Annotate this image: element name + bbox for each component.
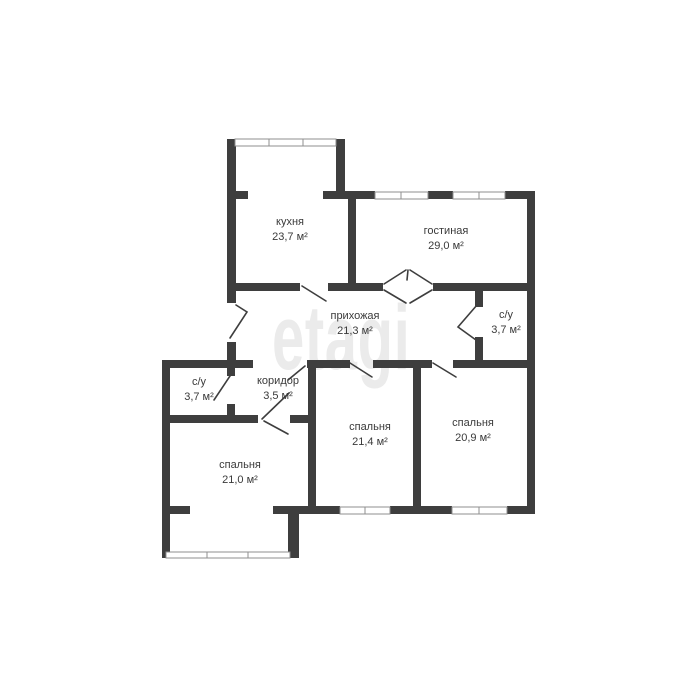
wall-segment bbox=[475, 337, 483, 368]
living-room-door-leaf bbox=[384, 290, 406, 303]
wall-segment bbox=[162, 415, 258, 423]
room-area: 23,7 м² bbox=[220, 230, 360, 245]
wall-segment bbox=[288, 508, 299, 558]
living-room-door-leaf bbox=[384, 270, 406, 284]
room-label-hallway: прихожая 21,3 м² bbox=[285, 309, 425, 339]
wall-segment bbox=[227, 283, 300, 291]
window bbox=[166, 552, 290, 558]
floor-plan-page: etagi bbox=[0, 0, 700, 700]
room-name: прихожая bbox=[285, 309, 425, 324]
living-room-door-leaf bbox=[410, 270, 432, 284]
room-area: 3,7 м² bbox=[436, 323, 576, 338]
wall-segment bbox=[428, 191, 453, 199]
room-name: гостиная bbox=[376, 224, 516, 239]
kitchen-door-leaf bbox=[302, 286, 326, 301]
entrance-door-leaf bbox=[230, 305, 247, 338]
wall-segment bbox=[336, 139, 345, 199]
floor-plan-drawing bbox=[0, 0, 700, 700]
windows-group bbox=[166, 139, 507, 558]
wall-segment bbox=[227, 342, 236, 368]
room-name: спальня bbox=[403, 416, 543, 431]
living-room-door-leaf bbox=[407, 270, 408, 280]
room-name: с/у bbox=[129, 375, 269, 390]
doors-group bbox=[214, 270, 477, 434]
room-label-bathroom-left: с/у 3,7 м² bbox=[129, 375, 269, 405]
living-room-door-leaf bbox=[410, 290, 432, 303]
bedroom-left-door-leaf bbox=[264, 421, 288, 434]
wall-segment bbox=[475, 287, 483, 307]
room-name: с/у bbox=[436, 308, 576, 323]
room-label-bedroom-right: спальня 20,9 м² bbox=[403, 416, 543, 446]
room-label-living-room: гостиная 29,0 м² bbox=[376, 224, 516, 254]
room-area: 21,0 м² bbox=[170, 473, 310, 488]
wall-segment bbox=[227, 404, 235, 423]
room-label-bathroom-right: с/у 3,7 м² bbox=[436, 308, 576, 338]
room-name: кухня bbox=[220, 215, 360, 230]
room-name: спальня bbox=[170, 458, 310, 473]
room-area: 3,7 м² bbox=[129, 390, 269, 405]
wall-segment bbox=[273, 506, 340, 514]
window bbox=[235, 139, 336, 146]
room-label-bedroom-left: спальня 21,0 м² bbox=[170, 458, 310, 488]
room-area: 20,9 м² bbox=[403, 431, 543, 446]
room-area: 29,0 м² bbox=[376, 239, 516, 254]
wall-segment bbox=[433, 283, 535, 291]
bedroom-middle-door-leaf bbox=[350, 363, 372, 377]
wall-segment bbox=[373, 360, 432, 368]
wall-segment bbox=[162, 360, 253, 368]
bedroom-right-door-leaf bbox=[433, 363, 456, 377]
room-label-kitchen: кухня 23,7 м² bbox=[220, 215, 360, 245]
walls-group bbox=[162, 139, 535, 558]
room-area: 21,3 м² bbox=[285, 324, 425, 339]
wall-segment bbox=[527, 191, 535, 514]
wall-segment bbox=[453, 360, 535, 368]
